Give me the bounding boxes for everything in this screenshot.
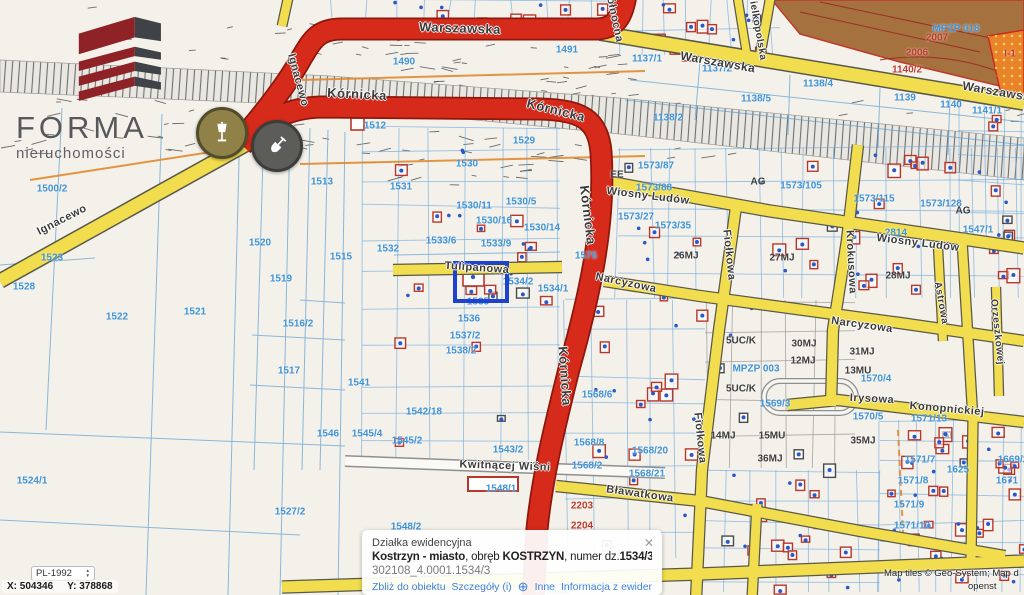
coordinate-readout: X: 504346 Y: 378868 [2,580,118,593]
forma-logo: FORMA nieruchomości [16,4,186,162]
close-icon[interactable]: ✕ [644,536,654,550]
parcel-info-popup: ✕ Działka ewidencyjna Kostrzyn - miasto,… [362,530,662,595]
shovel-marker[interactable] [251,120,303,172]
logo-name: FORMA [16,112,186,143]
updown-arrows-icon: ▲▼ [86,569,90,577]
map-attribution-line2: openst [968,581,997,592]
circle-plus-icon[interactable]: ⊕ [518,580,529,593]
shovel-icon [264,133,290,159]
forma-building-icon [62,4,174,110]
zoom-to-object-link[interactable]: Zbliż do obiektu [372,581,446,593]
selected-parcel-outline[interactable] [453,261,509,303]
parcel-id-code: 302108_4.0001.1534/3 [372,565,652,577]
registry-info-link[interactable]: Informacja z ewidencji [561,581,652,593]
street-lamp-marker[interactable] [196,107,248,159]
municipality: Kostrzyn - miasto [372,551,465,563]
details-link[interactable]: Szczegóły (i) [452,581,512,593]
logo-tagline: nieruchomości [16,145,186,162]
crs-value: PL-1992 [36,568,72,579]
y-coordinate: Y: 378868 [67,581,112,592]
map-attribution-line1: Map tiles © Geo-System; Map d [884,568,1019,579]
other-link[interactable]: Inne [535,581,555,593]
popup-header: Działka ewidencyjna [372,537,652,549]
popup-actions: Zbliż do obiektu Szczegóły (i) ⊕ Inne In… [372,580,652,593]
obreb: KOSTRZYN [503,551,565,563]
crs-selector[interactable]: PL-1992 ▲▼ [31,566,95,581]
parcel-description: Kostrzyn - miasto, obręb KOSTRZYN, numer… [372,551,652,563]
x-coordinate: X: 504346 [7,581,53,592]
parcel-number: 1534/3 [619,551,652,563]
map-canvas[interactable]: 1500/21523152815221521152015191516/21517… [0,0,1024,595]
street-lamp-icon [209,120,235,146]
